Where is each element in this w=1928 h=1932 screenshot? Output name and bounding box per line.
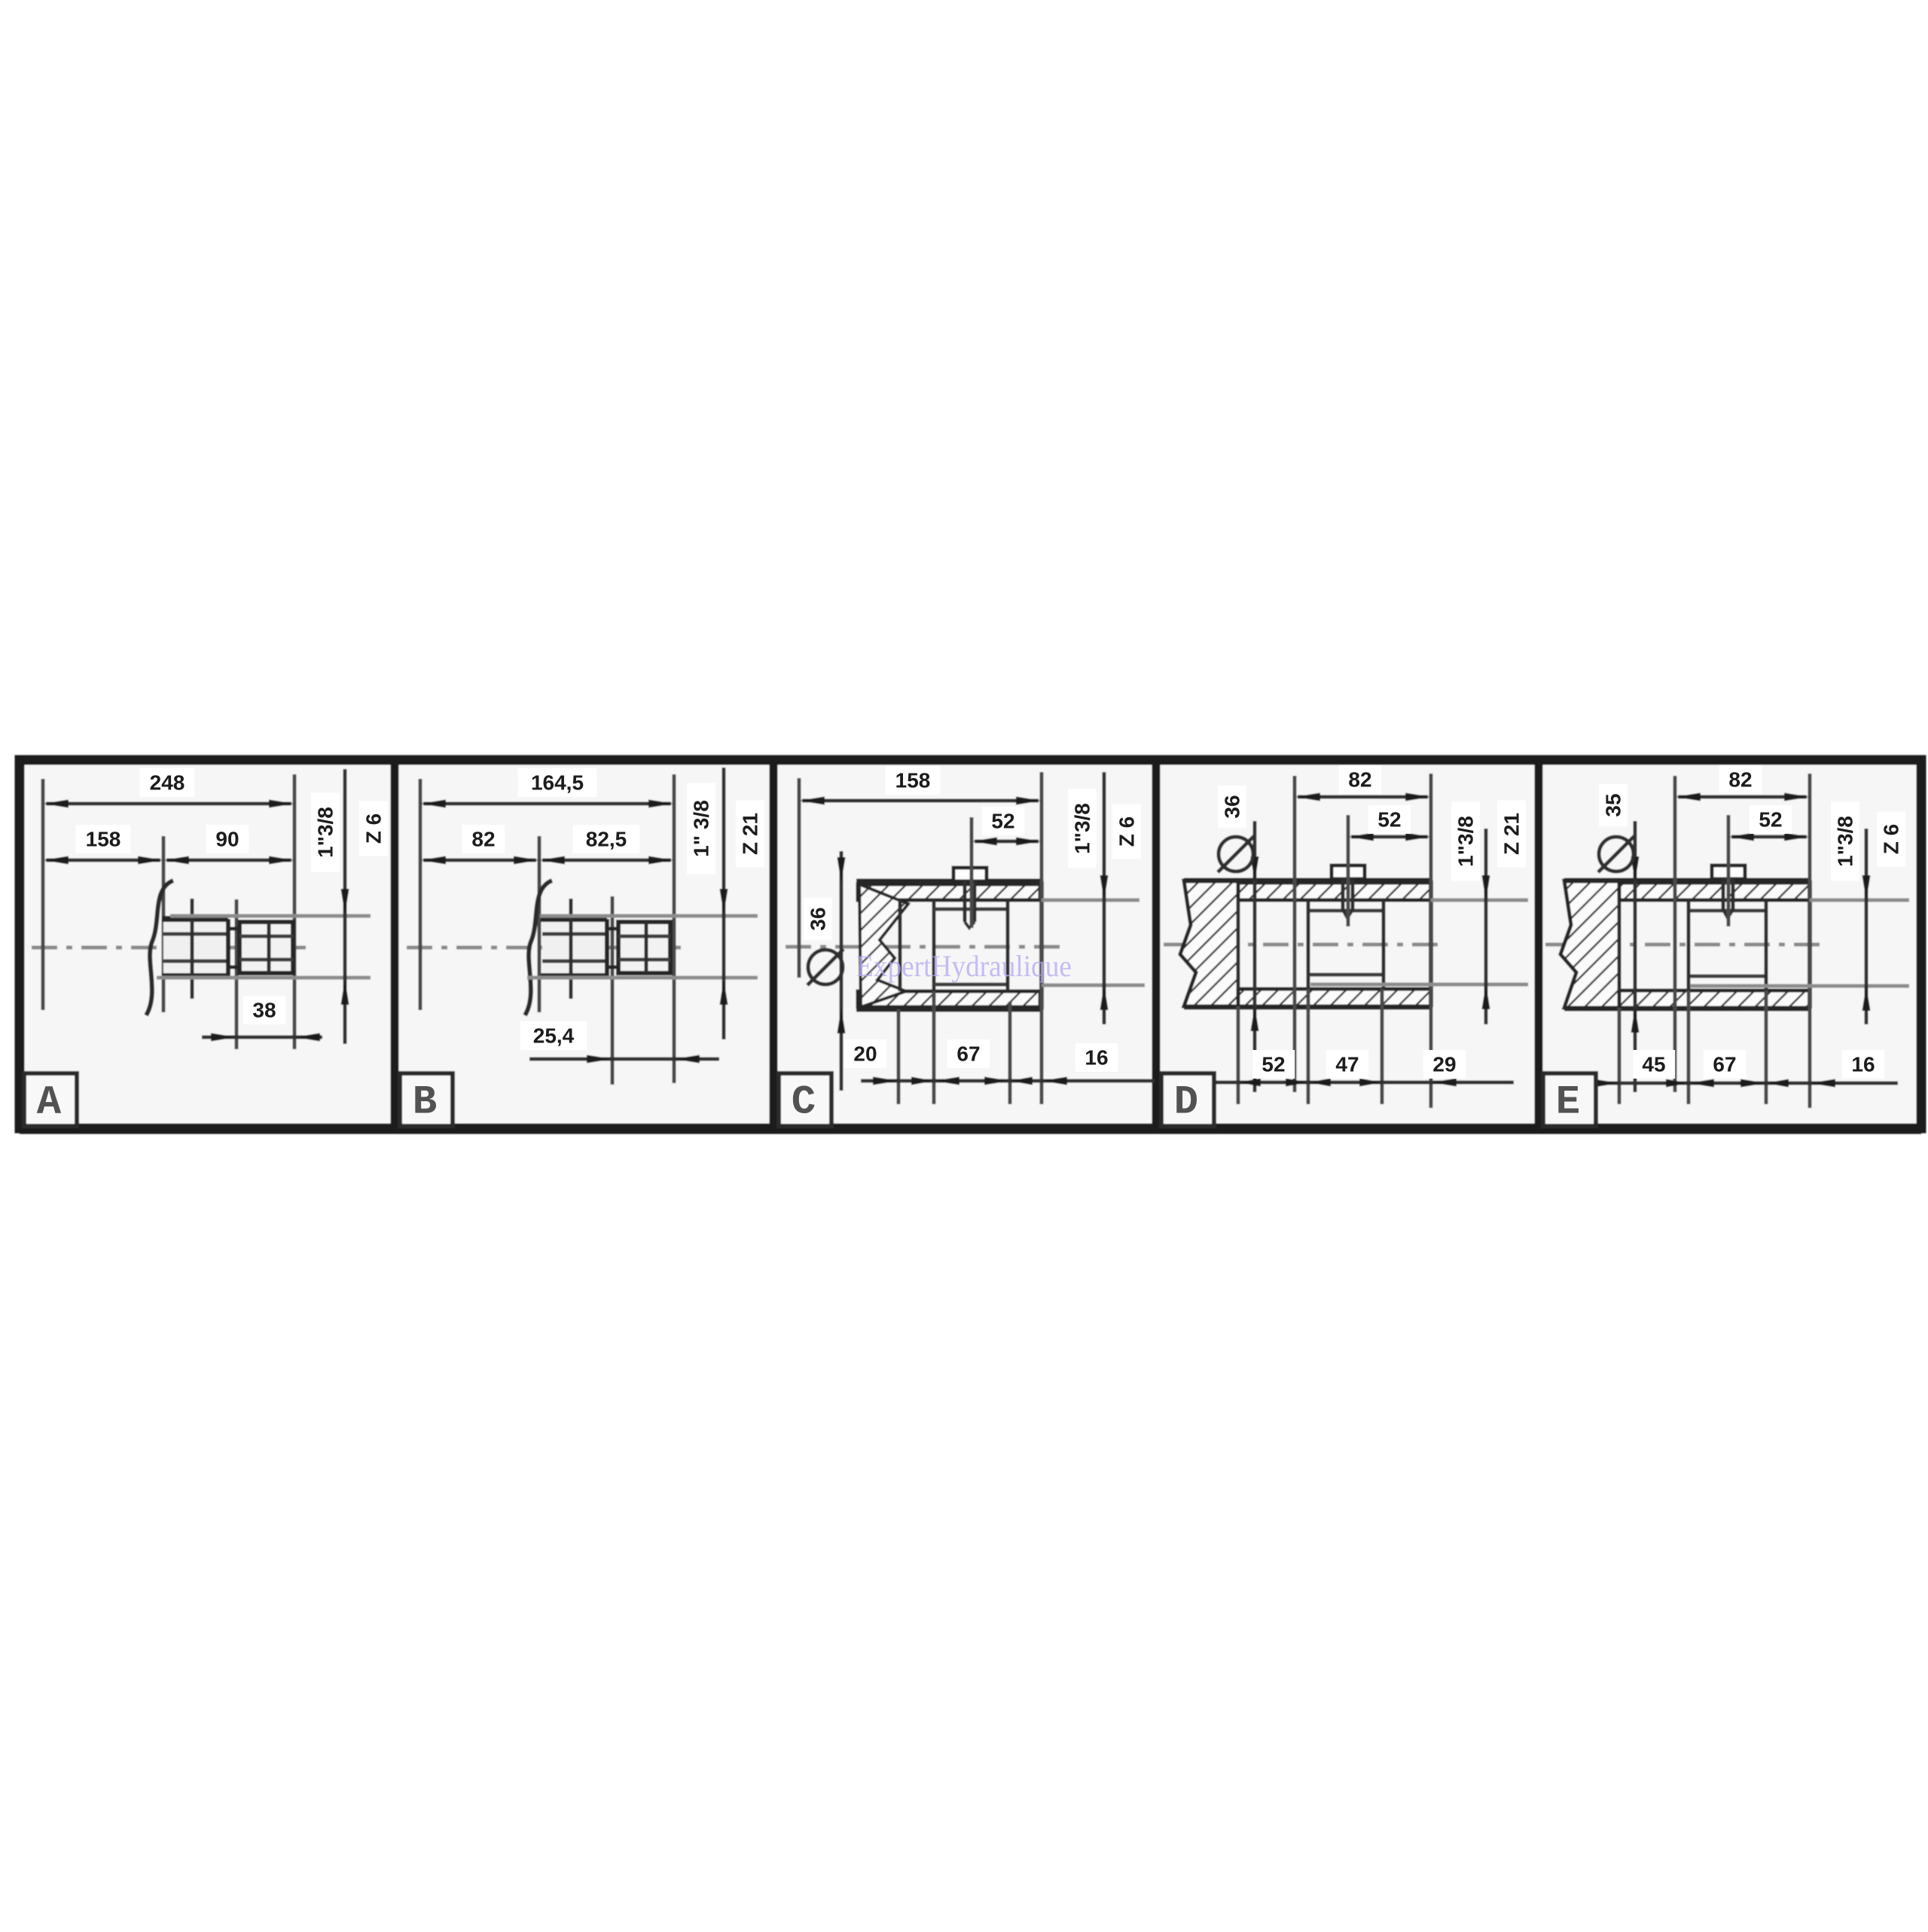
svg-text:C: C	[792, 1080, 816, 1126]
svg-text:158: 158	[86, 828, 121, 851]
svg-text:67: 67	[956, 1042, 980, 1066]
svg-text:35: 35	[1602, 793, 1625, 816]
svg-text:ExpertHydraulique: ExpertHydraulique	[856, 949, 1072, 983]
svg-text:82: 82	[1348, 768, 1371, 792]
svg-text:1" 3/8: 1" 3/8	[690, 800, 713, 857]
svg-text:1"3/8: 1"3/8	[1454, 816, 1478, 867]
svg-text:16: 16	[1084, 1046, 1108, 1070]
svg-text:82: 82	[1728, 768, 1752, 792]
svg-text:Z 6: Z 6	[1880, 824, 1903, 854]
svg-text:1"3/8: 1"3/8	[1834, 816, 1857, 867]
svg-text:38: 38	[252, 999, 276, 1022]
svg-text:1"3/8: 1"3/8	[314, 807, 337, 858]
svg-text:Z 6: Z 6	[362, 813, 386, 844]
svg-text:20: 20	[853, 1042, 877, 1066]
svg-text:Z 6: Z 6	[1115, 816, 1139, 847]
svg-text:52: 52	[991, 810, 1014, 833]
svg-text:82,5: 82,5	[586, 828, 627, 851]
svg-text:D: D	[1174, 1080, 1198, 1126]
svg-text:82: 82	[471, 828, 495, 851]
svg-text:E: E	[1556, 1080, 1580, 1126]
svg-text:29: 29	[1432, 1053, 1456, 1076]
svg-text:67: 67	[1713, 1053, 1736, 1076]
svg-text:36: 36	[1221, 795, 1244, 818]
svg-text:25,4: 25,4	[533, 1024, 575, 1048]
svg-text:A: A	[37, 1080, 62, 1126]
svg-text:16: 16	[1851, 1053, 1875, 1076]
svg-text:248: 248	[150, 771, 185, 795]
svg-text:36: 36	[807, 907, 830, 930]
svg-text:Z 21: Z 21	[739, 813, 762, 855]
svg-text:158: 158	[895, 769, 931, 792]
svg-text:Z 21: Z 21	[1500, 813, 1524, 855]
svg-text:47: 47	[1335, 1053, 1359, 1076]
svg-text:52: 52	[1759, 808, 1782, 832]
svg-text:1"3/8: 1"3/8	[1071, 803, 1094, 854]
svg-text:45: 45	[1642, 1053, 1665, 1076]
svg-text:52: 52	[1261, 1053, 1285, 1076]
svg-text:B: B	[413, 1080, 437, 1126]
svg-text:164,5: 164,5	[531, 771, 584, 795]
svg-text:90: 90	[215, 828, 239, 851]
svg-text:52: 52	[1377, 808, 1401, 832]
